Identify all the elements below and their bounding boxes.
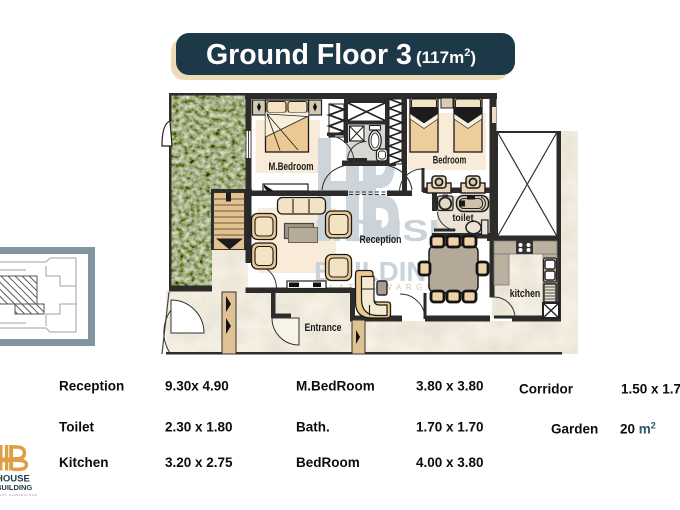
svg-text:Corridor: Corridor — [519, 382, 574, 397]
svg-text:M.Bedroom: M.Bedroom — [269, 161, 314, 173]
svg-text:Bath.: Bath. — [296, 420, 330, 435]
svg-text:20 m2: 20 m2 — [620, 421, 656, 437]
svg-text:toilet: toilet — [453, 212, 474, 224]
svg-text:ALAT GAWARGIOUS: ALAT GAWARGIOUS — [0, 493, 38, 497]
svg-text:3.20 x 2.75: 3.20 x 2.75 — [165, 455, 233, 470]
svg-text:kitchen: kitchen — [510, 288, 541, 300]
svg-text:2.30 x 1.80: 2.30 x 1.80 — [165, 420, 233, 435]
svg-text:1.70 x 1.70: 1.70 x 1.70 — [416, 420, 484, 435]
svg-text:Bedroom: Bedroom — [433, 155, 467, 167]
svg-text:Garden: Garden — [551, 422, 598, 437]
svg-text:Toilet: Toilet — [59, 420, 95, 435]
svg-text:BUILDING: BUILDING — [0, 483, 32, 492]
svg-text:BedRoom: BedRoom — [296, 455, 360, 470]
svg-text:4.00 x 3.80: 4.00 x 3.80 — [416, 455, 484, 470]
svg-text:3.80 x 3.80: 3.80 x 3.80 — [416, 379, 484, 394]
svg-text:Reception: Reception — [360, 234, 402, 246]
svg-text:Ground Floor 3: Ground Floor 3 — [206, 39, 412, 71]
svg-text:Kitchen: Kitchen — [59, 455, 109, 470]
svg-text:Entrance: Entrance — [305, 322, 342, 334]
svg-text:1.50 x 1.7: 1.50 x 1.7 — [621, 382, 680, 397]
svg-text:9.30x 4.90: 9.30x 4.90 — [165, 379, 229, 394]
svg-text:M.BedRoom: M.BedRoom — [296, 379, 375, 394]
svg-text:Reception: Reception — [59, 379, 124, 394]
